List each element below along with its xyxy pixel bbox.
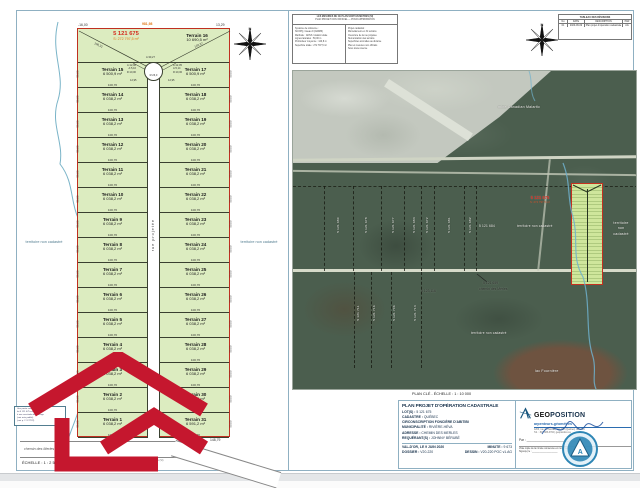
geoposition-logo-watermark (26, 352, 216, 474)
side-dim: 50,00 (76, 271, 80, 278)
title-block-info: PLAN PROJET D'OPÉRATION CADASTRALE LOT(S… (402, 403, 512, 455)
side-dim: 50,00 (229, 296, 233, 303)
territory-label-left: territoire non cadastré (14, 240, 74, 245)
rev-row-desc: Plan projet d'opération cadastrale (585, 24, 623, 27)
firm-logo-icon (519, 407, 532, 420)
side-dim: 50,00 (229, 246, 233, 253)
side-dim: 50,00 (76, 321, 80, 328)
terrain-area: 6 038,2 m² (78, 147, 147, 151)
lot-cell-right: Terrain 266 038,2 m²100,7650,00 (161, 288, 230, 312)
lot-cell-left: 50,00Terrain 66 038,2 m²100,76 (78, 288, 147, 312)
lot-cell-right: Terrain 206 038,2 m²100,7650,00 (161, 138, 230, 162)
lot-cell-left: 50,00Terrain 96 038,2 m²100,76 (78, 213, 147, 237)
lot-cell-right: Terrain 216 038,2 m²100,7650,00 (161, 163, 230, 187)
terrain-area: 6 038,2 m² (161, 322, 230, 326)
terrain-area: 6 038,2 m² (78, 322, 147, 326)
panel-divider (288, 10, 289, 470)
lot-cell-left: 50,00Terrain 146 038,2 m²100,76 (78, 88, 147, 112)
plan-sheet: territoire non cadastré territoire non c… (0, 0, 640, 480)
side-dim: 50,00 (229, 121, 233, 128)
rev-row-no: 01 (559, 24, 568, 27)
terrain-area: 6 038,2 m² (78, 272, 147, 276)
revision-table: TABLEAU DES RÉVISIONS No DATE DESCRIPTIO… (558, 14, 632, 40)
frontage-dim: 100,76 (78, 233, 147, 237)
side-dim: 50,00 (229, 371, 233, 378)
par-label: Par : (519, 438, 526, 442)
side-dim: 50,00 (76, 221, 80, 228)
lot-cell-left: 50,00Terrain 126 038,2 m²100,76 (78, 138, 147, 162)
frontage-dim: 100,76 (78, 108, 147, 112)
side-dim: 50,00 (229, 221, 233, 228)
title-block: PLAN PROJET D'OPÉRATION CADASTRALE LOT(S… (398, 400, 632, 469)
dim-top-left: -16,00 (78, 23, 88, 27)
side-dim: 50,00 (229, 196, 233, 203)
lot-cell-left: 50,00Terrain 106 038,2 m²100,76 (78, 188, 147, 212)
terrain-area: 6 038,2 m² (161, 272, 230, 276)
frontage-dim: 100,76 (78, 208, 147, 212)
rev-col-date: DATE (568, 20, 585, 23)
compass-n: N (249, 26, 252, 31)
rev-col-par: PAR (623, 20, 631, 23)
street-label: rue projetée (151, 219, 155, 251)
rev-col-no: No (559, 20, 568, 23)
aerial-photo: mine Canadian Malartic 5 121 6805 121 67… (292, 70, 637, 390)
side-dim: 50,00 (76, 146, 80, 153)
territory-label-right: territoire non cadastré (232, 240, 286, 245)
terrain-area: 6 038,2 m² (161, 97, 230, 101)
side-dim: 50,00 (76, 171, 80, 178)
side-dim: 50,00 (229, 346, 233, 353)
side-dim: 50,00 (76, 96, 80, 103)
frontage-dim: 100,76 (161, 233, 230, 237)
lot-cell-left: 50,00Terrain 136 038,2 m²100,76 (78, 113, 147, 137)
info-right-column: Projet cadastral :Morcellement en 31 ter… (348, 28, 396, 51)
side-dim: 50,00 (229, 96, 233, 103)
terrain-area: 6 038,2 m² (161, 172, 230, 176)
rev-col-desc: DESCRIPTION (585, 20, 623, 23)
frontage-dim: 100,76 (78, 308, 147, 312)
compass-rose-right: N (524, 22, 560, 58)
terrain-area: 6 038,2 m² (78, 222, 147, 226)
frontage-dim: 100,76 (161, 258, 230, 262)
dim-top-center: 981,98 (142, 22, 152, 26)
svg-text:A: A (578, 449, 583, 456)
terrain-area: 6 038,2 m² (161, 122, 230, 126)
frontage-dim: 100,76 (78, 133, 147, 137)
terrain-area: 6 038,2 m² (161, 297, 230, 301)
circle-radius-label: R:26,0 (150, 74, 158, 77)
professional-seal: A (561, 430, 599, 468)
frontage-dim: 100,76 (78, 258, 147, 262)
title-block-firm: GEOPOSITION arpenteurs-géomètres 1263, r… (519, 404, 631, 455)
lot-cell-right: Terrain 256 038,2 m²100,7650,00 (161, 263, 230, 287)
lot-cell-right: Terrain 246 038,2 m²100,7650,00 (161, 238, 230, 262)
lot-cell-right: Terrain 276 038,2 m²100,7650,00 (161, 313, 230, 337)
frontage-dim: 100,76 (161, 183, 230, 187)
lot-cell-right: Terrain 196 038,2 m²100,7650,00 (161, 113, 230, 137)
terrain-area: 6 038,2 m² (78, 247, 147, 251)
frontage-dim: 100,76 (78, 158, 147, 162)
side-dim: 50,00 (76, 121, 80, 128)
territory-left-text: territoire non cadastré (26, 240, 63, 244)
info-box: LES MESURES DE CE PLAN SONT EN MÈTRES (S… (292, 14, 398, 64)
frontage-dim: 100,76 (161, 108, 230, 112)
side-dim: 50,00 (76, 296, 80, 303)
frontage-dim: 100,76 (161, 133, 230, 137)
lot-cell-left: 50,00Terrain 76 038,2 m²100,76 (78, 263, 147, 287)
cul-de-sac-circle: R:26,0 (144, 62, 163, 81)
terrain-area: 6 038,2 m² (161, 197, 230, 201)
terrain-area: 6 038,2 m² (78, 97, 147, 101)
side-dim: 50,00 (229, 421, 233, 428)
lot-cell-left: 50,00Terrain 86 038,2 m²100,76 (78, 238, 147, 262)
side-dim: 50,00 (76, 246, 80, 253)
frontage-dim: 100,76 (161, 308, 230, 312)
frontage-dim: 100,76 (78, 183, 147, 187)
frontage-dim: 100,76 (161, 158, 230, 162)
frontage-dim: 100,76 (78, 333, 147, 337)
terrain-area: 6 038,2 m² (78, 122, 147, 126)
terrain-area: 6 038,2 m² (78, 172, 147, 176)
photo-stream (293, 71, 637, 390)
info-left-column: Système de référence :SCOPQ, fuseau 9 (N… (295, 28, 343, 48)
terrain-area: 6 038,2 m² (78, 197, 147, 201)
info-header-2: PLAN PROJET NON OFFICIEL — POUR APPROBAT… (295, 19, 395, 22)
side-dim: 50,00 (76, 196, 80, 203)
side-dim: 50,00 (229, 271, 233, 278)
territory-right-text: territoire non cadastré (241, 240, 278, 244)
rev-row-par: AG (623, 24, 631, 27)
lot-cell-left: 50,00Terrain 116 038,2 m²100,76 (78, 163, 147, 187)
terrain-area: 6 038,2 m² (78, 297, 147, 301)
terrain-area: 6 038,2 m² (161, 222, 230, 226)
side-dim: 50,00 (229, 171, 233, 178)
frontage-dim: 100,76 (78, 283, 147, 287)
frontage-dim: 100,76 (161, 208, 230, 212)
lot-cell-right: Terrain 236 038,2 m²100,7650,00 (161, 213, 230, 237)
side-dim: 50,00 (229, 146, 233, 153)
side-dim: 50,00 (229, 321, 233, 328)
rev-row-date: 2020-06-09 (568, 24, 585, 27)
lot-cell-left: 50,00Terrain 56 038,2 m²100,76 (78, 313, 147, 337)
side-dim: 50,00 (229, 396, 233, 403)
terrain-area: 6 038,2 m² (161, 247, 230, 251)
terrain-area: 6 038,2 m² (161, 347, 230, 351)
svg-text:N: N (541, 22, 544, 27)
terrain-area: 6 038,2 m² (161, 147, 230, 151)
lot-cell-right: Terrain 186 038,2 m²100,7650,00 (161, 88, 230, 112)
plan-title: PLAN PROJET D'OPÉRATION CADASTRALE (402, 403, 512, 408)
terrain-area: 6 038,2 m² (78, 347, 147, 351)
plan-cle-caption: PLAN CLÉ - ÉCHELLE : 1 : 10 000 (412, 392, 471, 396)
lot-cell-right: Terrain 226 038,2 m²100,7650,00 (161, 188, 230, 212)
dim-top-right: 13,29 (216, 23, 225, 27)
compass-rose-left: N (232, 26, 268, 62)
frontage-dim: 100,76 (161, 333, 230, 337)
frontage-dim: 100,76 (161, 283, 230, 287)
